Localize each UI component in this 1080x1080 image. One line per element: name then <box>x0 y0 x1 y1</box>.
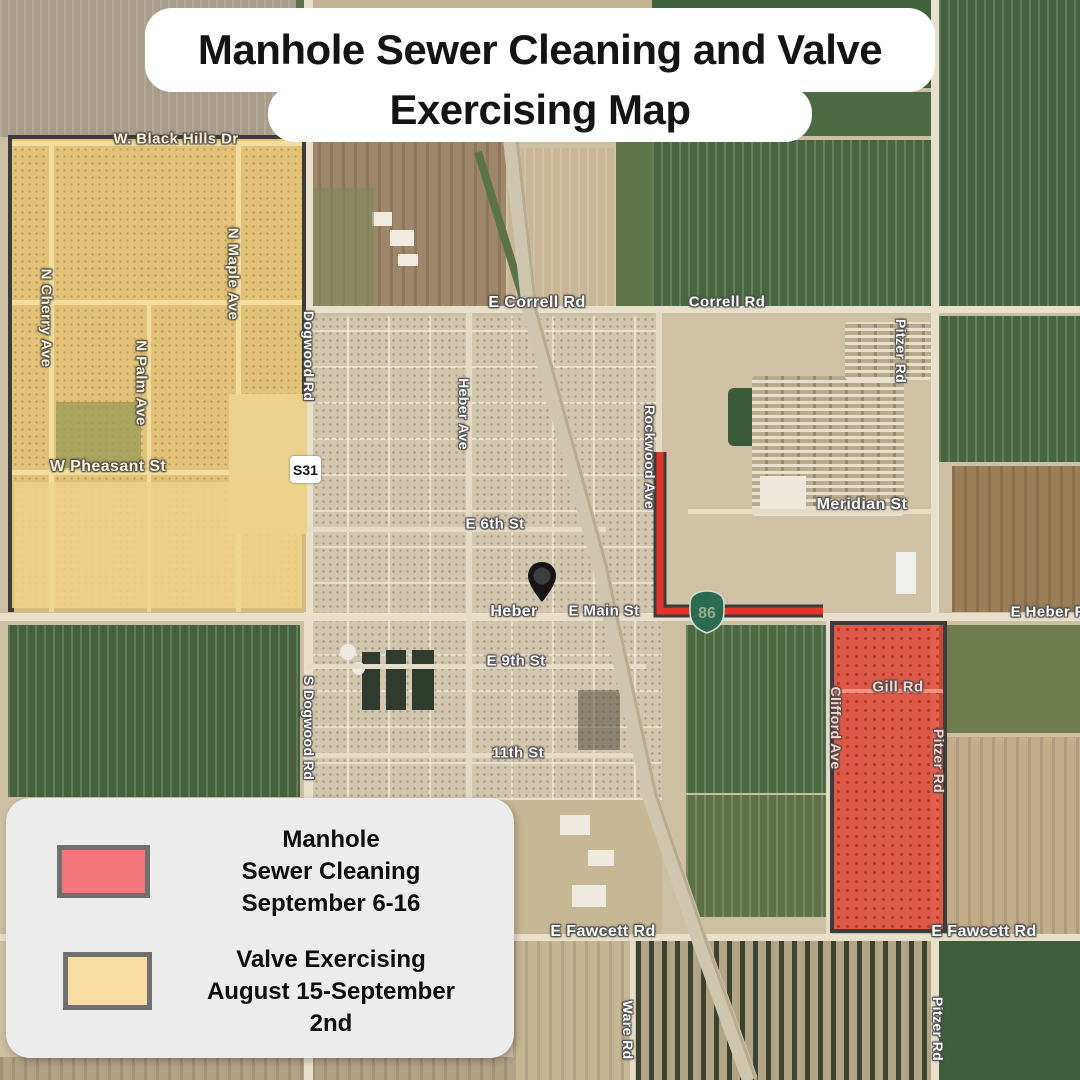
page-title-line1: Manhole Sewer Cleaning and Valve <box>145 26 935 74</box>
legend-line: Valve Exercising <box>156 944 506 976</box>
map-flyer: S31 86 W. Black Hills DrN Cherry AveN Ma… <box>0 0 1080 1080</box>
route-shield-86-icon: 86 <box>687 589 727 635</box>
route-shield-s31: S31 <box>290 456 321 483</box>
page-title-line2: Exercising Map <box>268 86 812 134</box>
shield-86-text: 86 <box>698 605 716 622</box>
legend-swatch-sewer <box>57 845 150 898</box>
legend-label-valve: Valve Exercising August 15-September 2nd <box>156 944 506 1040</box>
legend-line: 2nd <box>156 1008 506 1040</box>
legend-panel: Manhole Sewer Cleaning September 6-16 Va… <box>6 798 514 1058</box>
shield-s31-text: S31 <box>293 462 318 478</box>
legend-line: Manhole <box>156 824 506 856</box>
legend-label-sewer: Manhole Sewer Cleaning September 6-16 <box>156 824 506 920</box>
legend-swatch-valve <box>63 952 152 1010</box>
legend-line: September 6-16 <box>156 888 506 920</box>
legend-line: August 15-September <box>156 976 506 1008</box>
map-pin-icon <box>527 561 557 603</box>
legend-line: Sewer Cleaning <box>156 856 506 888</box>
